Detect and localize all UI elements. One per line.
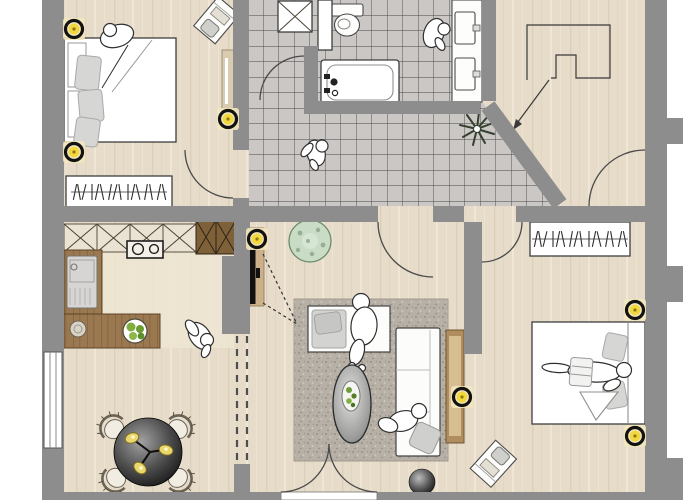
floor-plan-canvas <box>0 0 700 500</box>
wall-bedroom2-top <box>516 206 645 222</box>
sphere-pouf <box>409 469 435 495</box>
window-left <box>44 352 62 448</box>
wardrobe-with-hangers <box>66 176 172 209</box>
wall-dining-living-stub <box>234 464 250 500</box>
double-vanity-sinks <box>452 0 482 102</box>
sofa <box>396 328 442 456</box>
ceiling-light-icon <box>217 108 239 130</box>
ceiling-light-icon <box>451 386 473 408</box>
ceiling-light-icon <box>246 228 268 250</box>
snack-plate <box>342 381 360 411</box>
wall-right <box>645 0 667 500</box>
wall-living-bedroom2 <box>464 222 482 354</box>
double-bed <box>64 38 176 148</box>
stove-two-burners <box>127 241 163 258</box>
wall-notch <box>667 118 683 144</box>
fruit-bowl <box>123 319 147 343</box>
ceiling-light-icon <box>63 18 85 40</box>
small-bowl <box>70 321 86 337</box>
wardrobe-with-hangers <box>530 222 630 256</box>
wall-horizontal-main <box>42 206 378 222</box>
bench-with-cushion <box>308 306 390 352</box>
round-plant <box>289 220 331 262</box>
shower-washer-unit <box>278 1 312 32</box>
floor-plan-drawing <box>0 0 700 500</box>
pillow <box>602 332 629 362</box>
ceiling-light-icon <box>624 299 646 321</box>
bathtub <box>321 60 399 105</box>
ceiling-light-icon <box>624 425 646 447</box>
wall-bath-inner-v <box>304 46 318 104</box>
sink-with-drainer <box>67 256 97 308</box>
wall-bath-right <box>482 0 496 101</box>
dresser-detail <box>225 58 228 104</box>
wall-bottom-right <box>377 492 683 500</box>
oval-coffee-table <box>333 365 371 443</box>
wall-horizontal-mid <box>433 206 464 222</box>
wall-bath-divider-white <box>318 0 332 50</box>
ceiling-light-icon <box>63 141 85 163</box>
wall-bath-inner-h <box>304 101 480 114</box>
wall-notch <box>667 266 683 302</box>
wall-pillar <box>222 256 250 334</box>
french-door-threshold <box>281 492 377 500</box>
tall-cabinet-x <box>196 220 236 254</box>
tv <box>250 249 256 304</box>
